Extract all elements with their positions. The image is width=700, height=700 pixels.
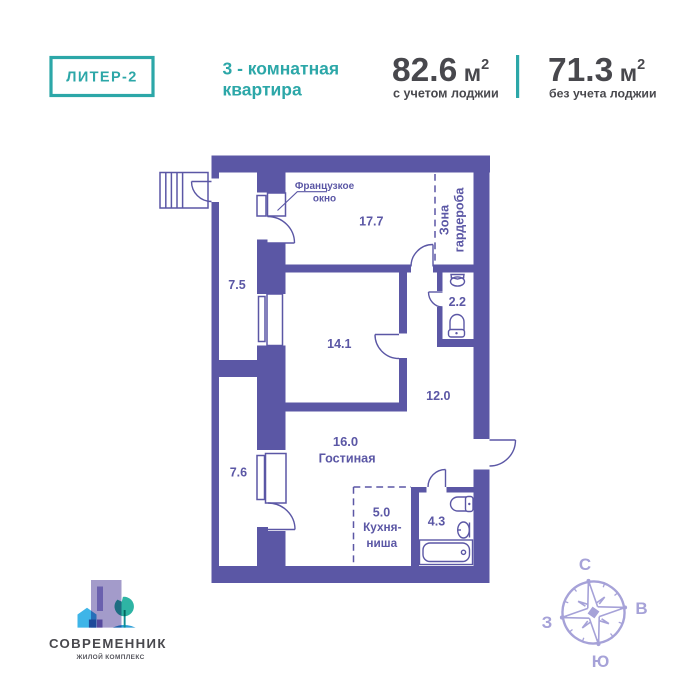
svg-text:без учета лоджии: без учета лоджии [549,87,657,101]
svg-text:82.6 м2: 82.6 м2 [392,52,489,89]
svg-text:с учетом лоджии: с учетом лоджии [393,87,499,101]
svg-text:5.0: 5.0 [373,505,390,519]
svg-text:С: С [579,555,591,574]
svg-text:71.3 м2: 71.3 м2 [548,52,645,89]
svg-text:В: В [635,599,647,618]
svg-text:7.6: 7.6 [230,465,247,479]
svg-text:2.2: 2.2 [449,295,466,309]
svg-text:12.0: 12.0 [426,389,450,403]
svg-text:Зона: Зона [438,204,452,235]
svg-text:Гостиная: Гостиная [319,452,376,466]
svg-text:17.7: 17.7 [359,215,383,229]
svg-text:окно: окно [313,194,336,205]
svg-text:З: З [542,613,553,632]
svg-text:7.5: 7.5 [228,278,245,292]
svg-text:3 - комнатная: 3 - комнатная [223,59,340,79]
svg-text:Ю: Ю [592,652,610,671]
svg-text:14.1: 14.1 [327,337,351,351]
svg-text:Французкое: Французкое [295,181,355,192]
svg-text:4.3: 4.3 [428,514,445,528]
svg-text:ЖИЛОЙ КОМПЛЕКС: ЖИЛОЙ КОМПЛЕКС [76,652,145,661]
svg-text:16.0: 16.0 [333,434,358,449]
svg-text:квартира: квартира [223,80,302,100]
svg-text:Кухня-: Кухня- [363,520,401,534]
svg-text:гардероба: гардероба [453,187,467,253]
svg-text:ЛИТЕР-2: ЛИТЕР-2 [66,70,138,86]
svg-text:СОВРЕМЕННИК: СОВРЕМЕННИК [49,636,167,651]
svg-text:ниша: ниша [366,536,397,550]
